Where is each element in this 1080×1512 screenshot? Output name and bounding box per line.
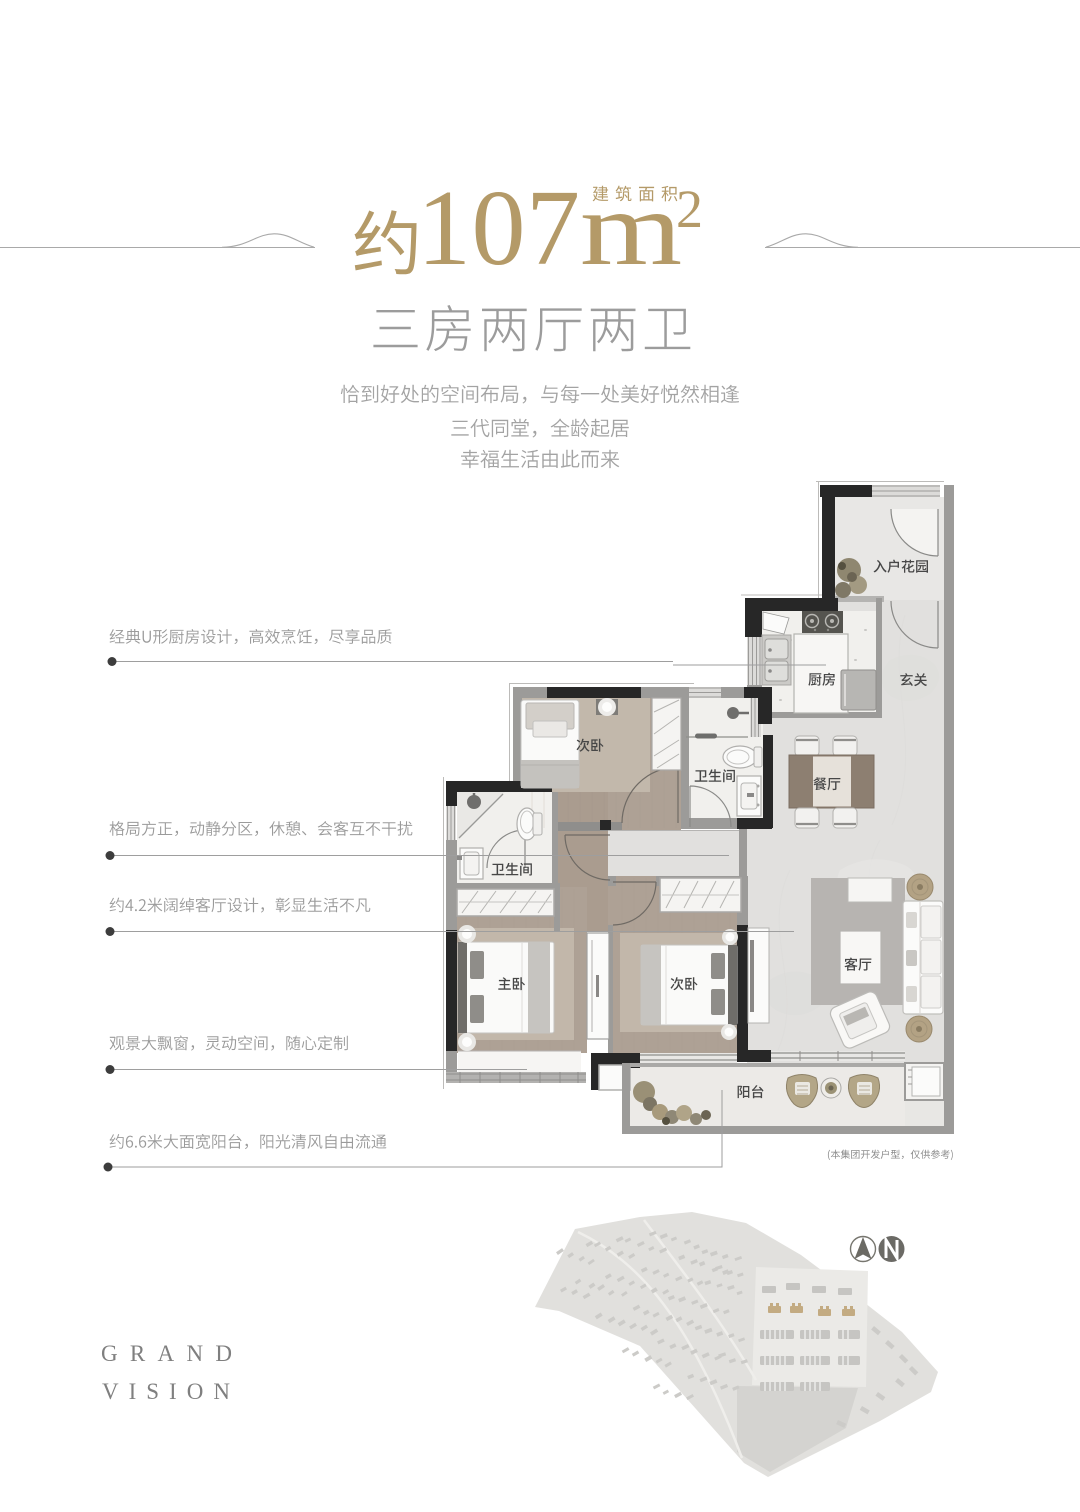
svg-text:VISION: VISION — [102, 1379, 240, 1404]
svg-text:2: 2 — [676, 179, 703, 239]
svg-text:m: m — [580, 170, 682, 287]
svg-text:GRAND: GRAND — [101, 1341, 244, 1366]
svg-text:107: 107 — [417, 169, 581, 288]
